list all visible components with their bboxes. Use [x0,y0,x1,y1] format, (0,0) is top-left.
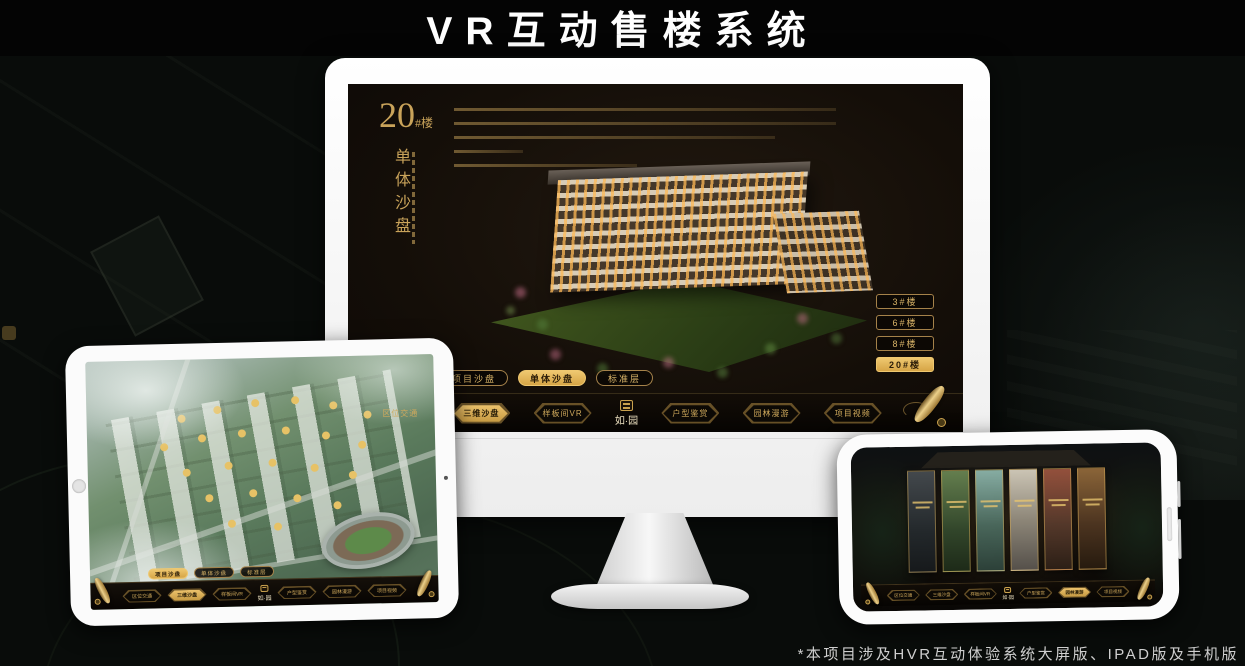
tablet-tab-project-sandtable-active[interactable]: 项目沙盘 [148,568,188,580]
nav-project-video[interactable]: 项目视频 [824,403,882,424]
tablet-screen: 项目沙盘 单体沙盘 标准层 区位交通 三维沙盘 样板间VR 如·园 户型鉴赏 园… [85,354,439,610]
tablet-brand-logo: 如·园 [257,584,271,601]
brand-logo: 如·园 [615,400,638,427]
phone-device: 区位交通 三维沙盘 样板间VR 如·园 户型鉴赏 园林漫游 项目视频 [836,429,1179,625]
scroll-ornament-icon[interactable] [1131,574,1153,602]
tablet-home-button[interactable] [72,479,86,493]
phone-nav-showroom-vr[interactable]: 样板间VR [964,588,997,600]
nav-garden-roam[interactable]: 园林漫游 [743,403,801,424]
title-bar: VR互动售楼系统 [0,0,1245,56]
nav-showroom-vr[interactable]: 样板间VR [534,403,592,424]
floor-button-6[interactable]: 6#楼 [876,315,934,330]
page: VR互动售楼系统 20#楼 单体沙盘 3#楼 6#楼 8#楼 20#楼 [0,0,1245,666]
gallery-card-courtyard[interactable] [907,470,937,572]
phone-nav-location-traffic[interactable]: 区位交通 [887,590,920,602]
gallery-card-landscape[interactable] [975,469,1005,571]
scroll-ornament-icon[interactable] [863,579,885,607]
footnote: *本项目涉及HVR互动体验系统大屏版、IPAD版及手机版 [798,643,1239,664]
gate-silhouette [921,450,1091,469]
floor-button-3[interactable]: 3#楼 [876,294,934,309]
phone-screen: 区位交通 三维沙盘 样板间VR 如·园 户型鉴赏 园林漫游 项目视频 [851,442,1164,611]
tab-standard-floor[interactable]: 标准层 [596,370,653,386]
scroll-ornament-icon[interactable] [92,574,119,609]
tablet-nav-unit-plans[interactable]: 户型鉴赏 [277,585,316,599]
scroll-ornament-icon[interactable] [410,567,437,602]
gallery-card-interior[interactable] [1077,467,1107,569]
gallery-card-autumn[interactable] [1043,468,1073,570]
tablet-camera-icon [444,476,448,480]
floor-button-20-active[interactable]: 20#楼 [876,357,934,372]
nav-unit-plans[interactable]: 户型鉴赏 [661,403,719,424]
background-gold-logo [2,326,16,340]
phone-nav-unit-plans[interactable]: 户型鉴赏 [1019,587,1052,599]
landscape-trees [348,84,353,89]
floor-button-8[interactable]: 8#楼 [876,336,934,351]
phone-brand-logo: 如·园 [1002,586,1014,600]
scroll-ornament-icon[interactable] [903,380,955,432]
phone-nav-3d-sandtable[interactable]: 三维沙盘 [925,589,958,601]
building-wing [773,211,873,294]
brand-seal-icon [1004,586,1011,592]
page-title: VR互动售楼系统 [426,0,818,56]
sand-table-platform [491,280,867,372]
building-render [550,171,808,292]
scene-gallery [907,467,1107,572]
gallery-card-garden[interactable] [941,470,971,572]
building-heading: 20#楼 [379,94,433,136]
sub-tab-bar: 项目沙盘 单体沙盘 标准层 [440,370,653,386]
heading-subtitle-english-deco [412,152,415,244]
gallery-card-building[interactable] [1009,468,1039,570]
monitor-stand-base [551,584,749,609]
phone-nav-garden-roam-active[interactable]: 园林漫游 [1058,587,1091,599]
tablet-nav-garden-roam[interactable]: 园林漫游 [322,584,361,598]
phone-side-button[interactable] [1177,481,1180,507]
tablet-tab-single-sandtable[interactable]: 单体沙盘 [194,567,234,579]
tab-single-sandtable-active[interactable]: 单体沙盘 [518,370,586,386]
brand-seal-icon [260,584,268,591]
heading-subtitle: 单体沙盘 [388,148,412,240]
building-number-suffix: #楼 [415,116,433,130]
tablet-device: 项目沙盘 单体沙盘 标准层 区位交通 三维沙盘 样板间VR 如·园 户型鉴赏 园… [65,338,459,627]
phone-speaker-slot [1167,507,1173,541]
tablet-nav-project-video[interactable]: 项目视频 [367,583,406,597]
nav-3d-sandtable-active[interactable]: 三维沙盘 [452,403,510,424]
building-number: 20 [379,95,415,135]
tablet-nav-showroom-vr[interactable]: 样板间VR [212,587,251,601]
phone-navbar: 区位交通 三维沙盘 样板间VR 如·园 户型鉴赏 园林漫游 项目视频 [861,579,1155,606]
tablet-nav-location-traffic[interactable]: 区位交通 [122,589,161,603]
floor-button-group: 3#楼 6#楼 8#楼 20#楼 [876,294,934,372]
brand-seal-icon [620,400,633,411]
tablet-nav-3d-sandtable-active[interactable]: 三维沙盘 [167,588,206,602]
tablet-tab-standard-floor[interactable]: 标准层 [240,566,274,578]
phone-nav-project-video[interactable]: 项目视频 [1096,586,1129,598]
